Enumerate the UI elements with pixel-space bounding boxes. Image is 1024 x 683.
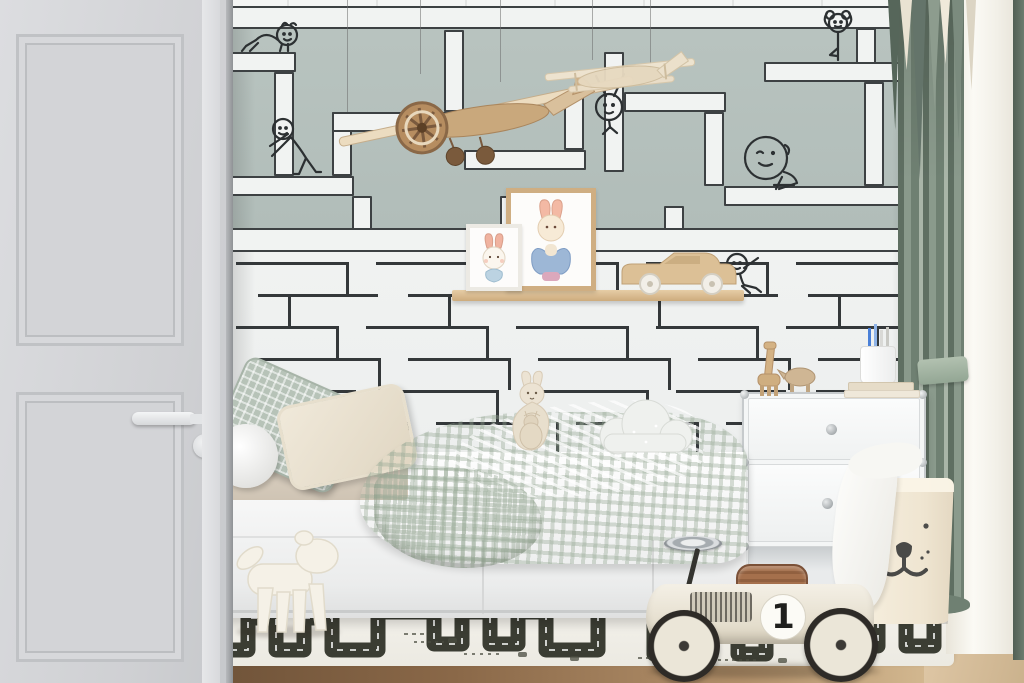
curtain-tieback	[917, 356, 969, 385]
maze-line	[236, 262, 346, 265]
maze-line	[366, 326, 486, 329]
door-jamb-highlight	[202, 0, 220, 683]
maze-line	[448, 294, 451, 326]
maze-line	[538, 358, 668, 361]
race-car-front-wheel	[648, 610, 720, 682]
maze-line	[486, 326, 489, 358]
cabinet-chrome-ball	[740, 390, 749, 399]
pencil	[874, 324, 877, 348]
maze-line	[626, 326, 629, 358]
race-car-number: 1	[771, 597, 795, 637]
maze-line	[808, 294, 906, 297]
door-panel-lower	[16, 392, 184, 662]
door-handle	[132, 412, 196, 425]
plane-string	[420, 0, 421, 74]
maze-line	[656, 326, 756, 329]
wooden-shelf-car	[616, 248, 740, 294]
doodle-yoga-figure-icon	[816, 10, 860, 62]
small-bunny-art	[472, 230, 516, 286]
wooden-rhino-toy	[778, 362, 818, 392]
doodle-crawling-baby-icon	[238, 20, 302, 52]
paneled-door	[0, 0, 233, 683]
kangaroo-plush	[500, 370, 564, 454]
maze-line	[796, 262, 906, 265]
maze-line	[258, 358, 378, 361]
maze-line	[336, 326, 339, 358]
maze-line	[288, 294, 291, 326]
maze-line	[408, 358, 508, 361]
large-bunny-art	[516, 196, 586, 284]
doodle-pushing-figure-icon	[266, 118, 326, 176]
maze-line	[838, 294, 841, 326]
maze-line	[236, 326, 336, 329]
pencil	[868, 328, 871, 348]
door-panel-upper	[16, 34, 184, 346]
door-open-edge	[226, 0, 233, 683]
pencil	[886, 327, 889, 348]
puppy-sculpture	[224, 526, 346, 636]
race-car-number-roundel: 1	[760, 594, 806, 640]
pencil-cup	[860, 346, 896, 384]
doodle-big-head-figure-icon	[738, 132, 806, 190]
race-car-steering-wheel	[664, 536, 722, 551]
cloud-pillow	[590, 402, 698, 456]
maze-line	[516, 326, 626, 329]
cabinet-knob	[822, 498, 833, 509]
maze-line	[258, 294, 378, 297]
maze-line	[346, 262, 349, 294]
green-drape-right-sliver	[1013, 0, 1024, 660]
kids-bedroom-scene: 1	[0, 0, 1024, 683]
maze-line	[668, 358, 671, 390]
book-stack	[844, 390, 920, 398]
race-car-rear-wheel	[804, 608, 878, 682]
cabinet-knob	[826, 424, 837, 435]
